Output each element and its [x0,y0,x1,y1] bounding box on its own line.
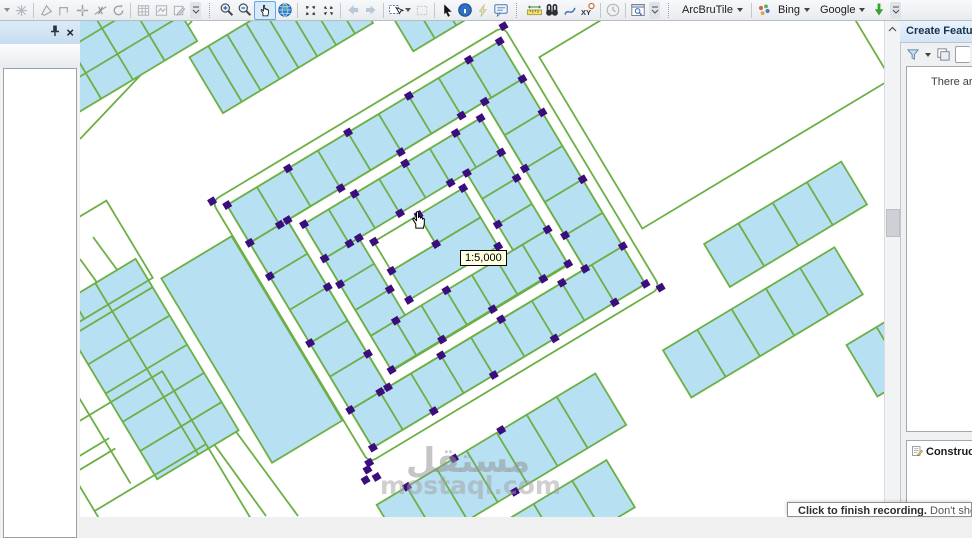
separator [751,3,752,18]
toolbar-grip[interactable] [209,3,214,18]
fixed-zoom-in-icon[interactable] [301,1,319,19]
find-route-icon[interactable] [561,1,579,19]
toolbar-grip[interactable] [668,3,673,18]
separator [340,3,341,18]
toolbar-dropdown-partial-icon[interactable] [4,8,10,12]
reshape-feature-icon[interactable] [55,1,73,19]
left-panel-content[interactable] [3,68,77,538]
toolbar-overflow-button[interactable] [890,2,901,19]
download-green-arrow-icon[interactable] [870,1,888,19]
pan-hand-cursor [408,207,430,234]
bing-menu[interactable]: Bing [773,3,815,17]
time-slider-icon[interactable] [604,1,622,19]
measure-icon[interactable] [525,1,543,19]
viewer-window-icon[interactable] [629,1,647,19]
edit-annotation-icon[interactable] [170,1,188,19]
scale-tooltip: 1:5,000 [460,250,507,266]
construction-tools-icon [911,448,923,460]
pan-tool-button[interactable] [254,1,276,20]
separator [33,3,34,18]
hyperlink-icon[interactable] [474,1,492,19]
chevron-down-icon [737,8,743,12]
separator [625,3,626,18]
chevron-down-icon [859,8,865,12]
edit-vertices-icon[interactable] [37,1,55,19]
recording-popup-rest-text: Don't show [927,505,972,517]
html-popup-icon[interactable] [492,1,510,19]
rotate-tool-icon[interactable] [109,1,127,19]
attribute-table-icon[interactable] [134,1,152,19]
map-viewport[interactable]: مستقل mostaql.com 1:5,000 [80,21,884,517]
scrollbar-up-icon[interactable] [884,21,900,37]
google-label: Google [820,4,855,16]
map-canvas[interactable] [80,21,884,517]
toolbar-overflow-button[interactable] [190,2,201,19]
identify-icon[interactable] [456,1,474,19]
move-feature-icon[interactable] [73,1,91,19]
left-panel-toolbar [0,44,80,68]
chevron-down-icon [804,8,810,12]
svg-text:XY: XY [581,8,591,17]
pin-icon[interactable] [50,25,60,40]
no-templates-text: There are no templates to display. [907,67,972,88]
recording-popup-bold-text: Click to finish recording. [798,505,927,517]
templates-list[interactable]: There are no templates to display. [906,66,972,432]
left-panel-header: × [0,21,80,44]
google-menu[interactable]: Google [815,3,870,17]
recording-notification-popup[interactable]: Click to finish recording. Don't show [787,502,972,517]
snap-icon[interactable] [12,1,30,19]
select-features-dropdown-icon[interactable] [405,8,411,12]
zoom-out-icon[interactable] [236,1,254,19]
back-extent-icon[interactable] [344,1,362,19]
scrollbar-thumb[interactable] [886,209,900,237]
separator [383,3,384,18]
filter-templates-icon[interactable] [904,46,922,64]
search-box-edge[interactable] [955,46,970,63]
create-features-title: Create Features [900,21,972,43]
close-icon[interactable]: × [66,28,74,38]
table-of-contents-panel: × [0,21,81,517]
go-to-xy-icon[interactable]: XY [579,1,597,19]
full-extent-globe-icon[interactable] [276,1,294,19]
separator [130,3,131,18]
map-vertical-scrollbar[interactable] [884,21,901,517]
fixed-zoom-out-icon[interactable] [319,1,337,19]
parcel-blocks-layer [80,21,884,517]
basemap-splat-icon[interactable] [755,1,773,19]
arcbrutile-menu[interactable]: ArcBruTile [677,3,748,17]
forward-extent-icon[interactable] [362,1,380,19]
bing-label: Bing [778,4,800,16]
create-features-toolbar [900,43,972,66]
clear-selection-icon[interactable] [413,1,431,19]
separator [600,3,601,18]
arcbrutile-label: ArcBruTile [682,4,733,16]
toolbar-overflow-button[interactable] [649,2,660,19]
split-tool-icon[interactable] [91,1,109,19]
chevron-down-icon[interactable] [925,53,931,57]
select-elements-icon[interactable] [438,1,456,19]
zoom-in-icon[interactable] [218,1,236,19]
organize-templates-icon[interactable] [934,46,952,64]
toolbar-grip[interactable] [516,3,521,18]
separator [434,3,435,18]
sketch-properties-icon[interactable] [152,1,170,19]
select-features-icon[interactable] [387,1,405,19]
construction-tools-title: Construction Tools [926,446,972,458]
separator [297,3,298,18]
main-toolbar: XY ArcBruTile Bing Google [0,0,972,21]
find-icon[interactable] [543,1,561,19]
